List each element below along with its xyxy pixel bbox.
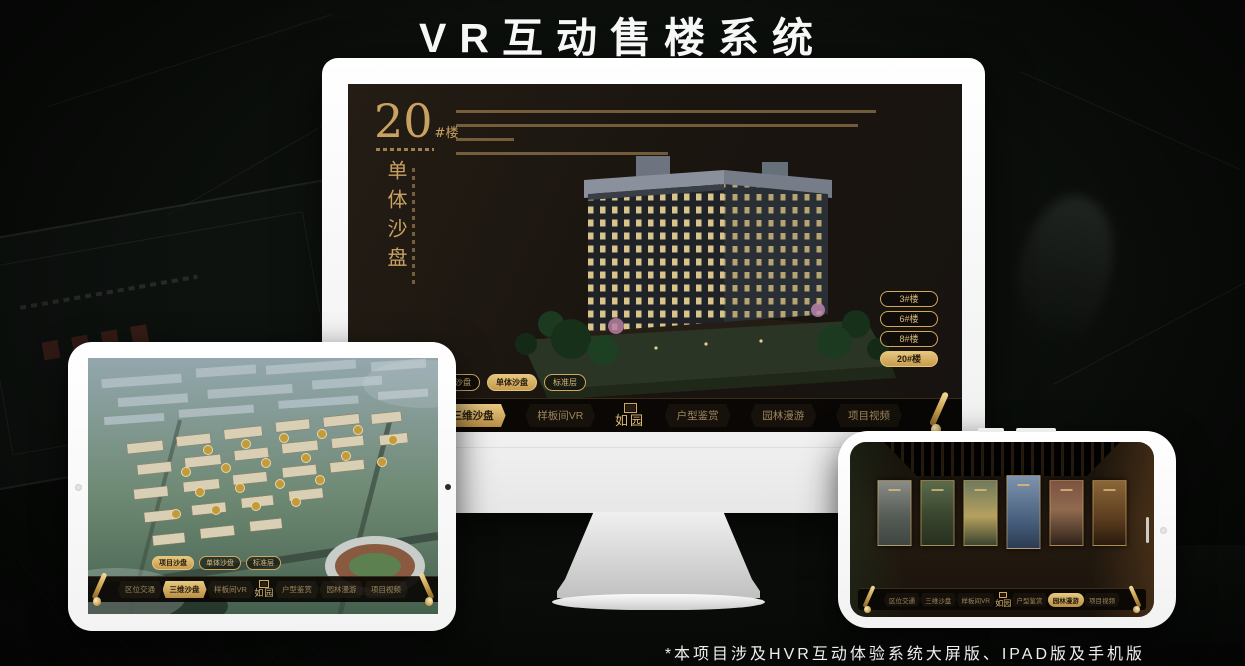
tablet-screen: 项目沙盘 单体沙盘 标准层 区位交通 三维沙盘 样板间VR 如园 户型鉴赏 园林… xyxy=(88,358,438,614)
building-render xyxy=(466,152,896,398)
gallery-panel[interactable] xyxy=(1007,475,1041,549)
gallery-panels xyxy=(878,480,1127,549)
building-number-value: 20 xyxy=(374,94,433,148)
gallery-panel[interactable] xyxy=(1050,480,1084,546)
nav-project-video[interactable]: 项目视频 xyxy=(364,581,408,598)
floor-button-20[interactable]: 20#楼 xyxy=(880,351,938,367)
scroll-icon[interactable] xyxy=(931,391,946,432)
nav-unit-appreciation[interactable]: 户型鉴赏 xyxy=(275,581,319,598)
gallery-panel[interactable] xyxy=(878,480,912,546)
subtab-project-sandbox[interactable]: 项目沙盘 xyxy=(152,556,194,570)
brand-logo: 如园 xyxy=(995,592,1011,608)
nav-project-video[interactable]: 项目视频 xyxy=(836,404,902,427)
bg-river xyxy=(999,185,1131,355)
seal-icon xyxy=(259,580,269,588)
nav-location-traffic[interactable]: 区位交通 xyxy=(118,581,162,598)
sub-tab-group: 项目沙盘 单体沙盘 标准层 xyxy=(152,556,281,570)
building-number-suffix: #楼 xyxy=(435,126,459,141)
nav-location-traffic[interactable]: 区位交通 xyxy=(884,593,920,607)
subtab-standard-floor[interactable]: 标准层 xyxy=(246,556,281,570)
brand-name: 如园 xyxy=(615,415,645,428)
scroll-icon[interactable] xyxy=(93,572,105,606)
scroll-icon[interactable] xyxy=(864,585,874,613)
pergola-render xyxy=(884,442,1120,476)
power-button[interactable] xyxy=(1016,428,1056,432)
tablet-device: 项目沙盘 单体沙盘 标准层 区位交通 三维沙盘 样板间VR 如园 户型鉴赏 园林… xyxy=(68,342,456,631)
phone-navbar: 区位交通 三维沙盘 样板间VR 如园 户型鉴赏 园林漫游 项目视频 xyxy=(858,588,1146,610)
nav-3d-sandbox[interactable]: 三维沙盘 xyxy=(163,581,207,598)
nav-unit-appreciation[interactable]: 户型鉴赏 xyxy=(665,404,731,427)
page-title: VR互动售楼系统 xyxy=(0,4,1245,64)
nav-3d-sandbox[interactable]: 三维沙盘 xyxy=(920,593,956,607)
stage: VR互动售楼系统 20#楼 单体沙盘 xyxy=(0,0,1245,666)
camera-icon xyxy=(1160,527,1167,534)
footnote: *本项目涉及HVR互动体验系统大屏版、IPAD版及手机版 xyxy=(665,640,1145,664)
building-subtitle: 单体沙盘 xyxy=(382,160,411,276)
nav-showroom-vr[interactable]: 样板间VR xyxy=(525,404,595,427)
building-number: 20#楼 xyxy=(374,98,458,144)
scroll-icon[interactable] xyxy=(421,572,433,606)
nav-garden-roam[interactable]: 园林漫游 xyxy=(319,581,363,598)
seal-icon xyxy=(999,592,1007,598)
seal-icon xyxy=(624,403,637,413)
home-indicator[interactable] xyxy=(1146,517,1149,543)
camera-icon xyxy=(75,484,82,491)
subtab-single-sandbox[interactable]: 单体沙盘 xyxy=(487,374,537,391)
gallery-panel[interactable] xyxy=(921,480,955,546)
monitor-stand-base xyxy=(552,594,765,610)
nav-unit-appreciation[interactable]: 户型鉴赏 xyxy=(1011,593,1047,607)
floor-button-8[interactable]: 8#楼 xyxy=(880,331,938,347)
phone-device: 区位交通 三维沙盘 样板间VR 如园 户型鉴赏 园林漫游 项目视频 xyxy=(838,431,1176,628)
brand-logo: 如园 xyxy=(615,403,645,428)
subtab-single-sandbox[interactable]: 单体沙盘 xyxy=(199,556,241,570)
floor-button-6[interactable]: 6#楼 xyxy=(880,311,938,327)
floor-button-group: 3#楼 6#楼 8#楼 20#楼 xyxy=(880,291,938,367)
decorative-caption-vertical xyxy=(412,164,415,284)
decorative-caption xyxy=(376,148,434,151)
nav-garden-roam[interactable]: 园林漫游 xyxy=(1048,593,1084,607)
bg-road-line xyxy=(1020,71,1240,170)
home-button[interactable] xyxy=(445,484,451,490)
gallery-panel[interactable] xyxy=(964,480,998,546)
phone-screen: 区位交通 三维沙盘 样板间VR 如园 户型鉴赏 园林漫游 项目视频 xyxy=(850,442,1154,617)
floor-button-3[interactable]: 3#楼 xyxy=(880,291,938,307)
brand-logo: 如园 xyxy=(254,580,274,599)
subtab-standard-floor[interactable]: 标准层 xyxy=(544,374,586,391)
gallery-panel[interactable] xyxy=(1093,480,1127,546)
nav-showroom-vr[interactable]: 样板间VR xyxy=(207,581,254,598)
nav-showroom-vr[interactable]: 样板间VR xyxy=(956,593,995,607)
volume-button[interactable] xyxy=(978,428,1004,432)
nav-garden-roam[interactable]: 园林漫游 xyxy=(750,404,816,427)
scroll-icon[interactable] xyxy=(1130,585,1140,613)
monitor-stand xyxy=(557,512,760,598)
nav-project-video[interactable]: 项目视频 xyxy=(1084,593,1120,607)
tablet-navbar: 区位交通 三维沙盘 样板间VR 如园 户型鉴赏 园林漫游 项目视频 xyxy=(88,576,438,602)
brand-name: 如园 xyxy=(254,590,274,599)
brand-name: 如园 xyxy=(995,600,1011,608)
